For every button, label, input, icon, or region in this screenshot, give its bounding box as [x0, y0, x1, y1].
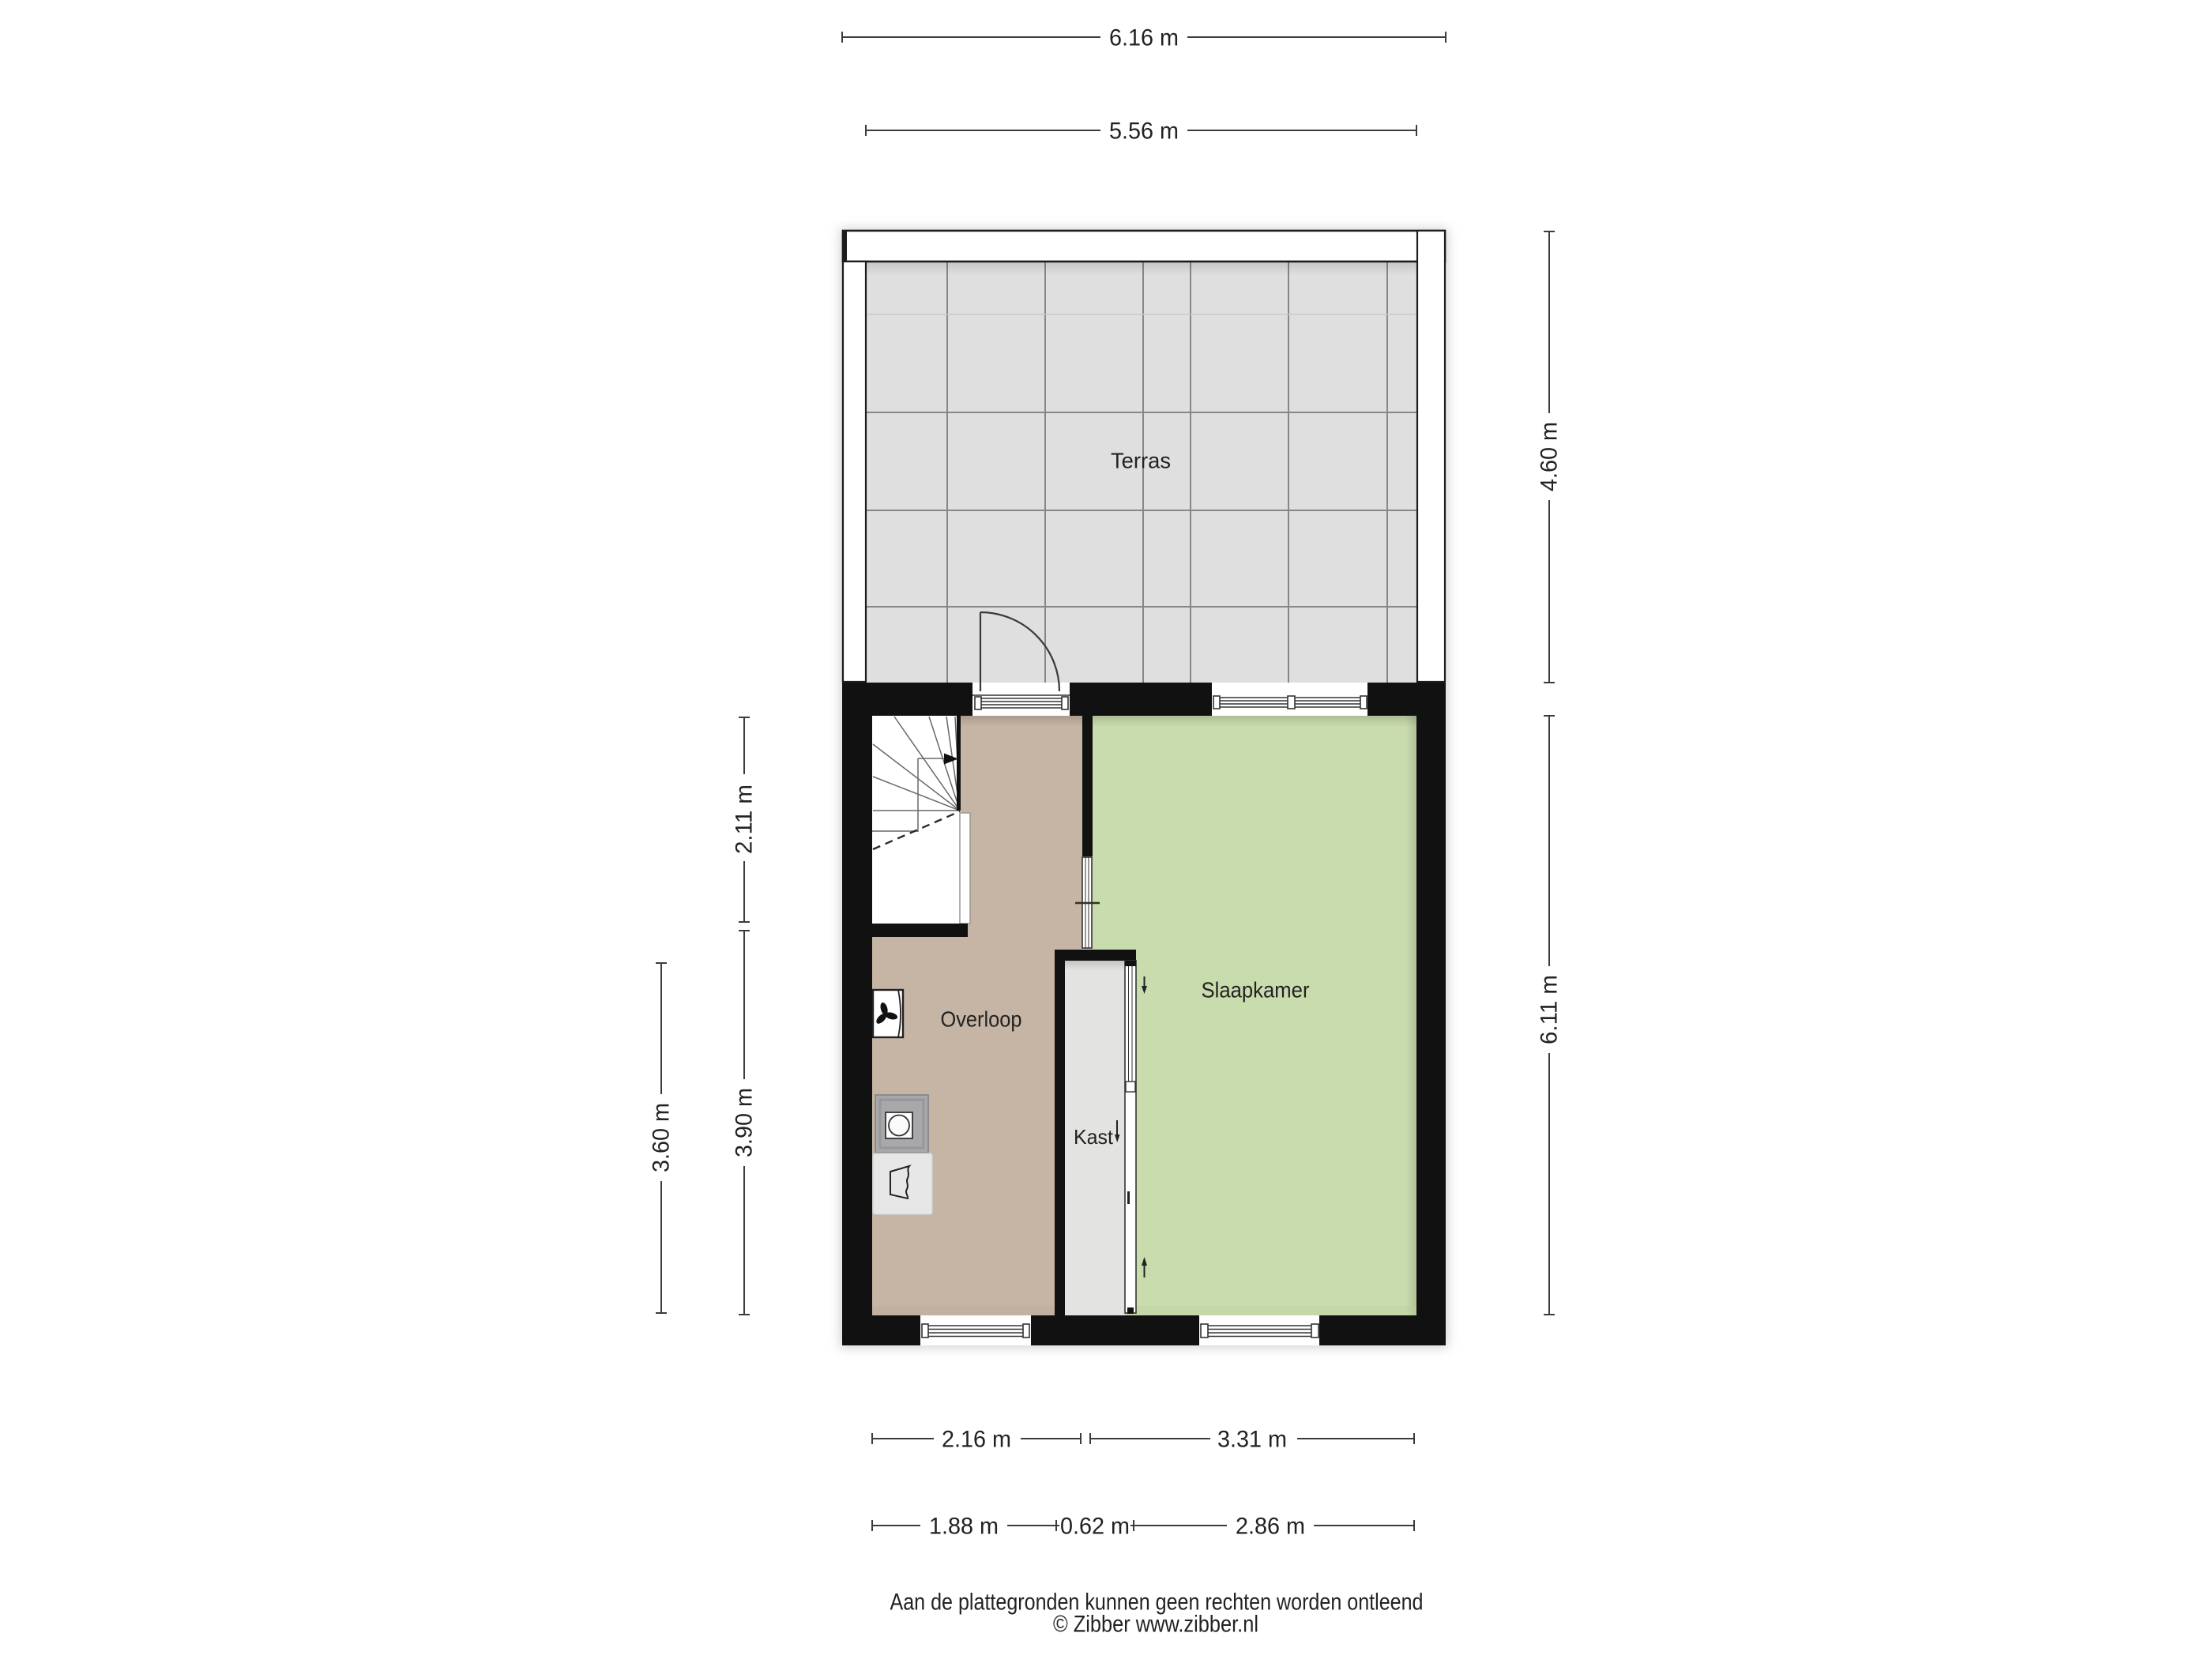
svg-text:5.56 m: 5.56 m	[1109, 119, 1179, 145]
svg-text:Terras: Terras	[1111, 449, 1171, 473]
svg-text:3.31 m: 3.31 m	[1217, 1427, 1287, 1453]
svg-text:1.88 m: 1.88 m	[929, 1514, 999, 1540]
svg-text:Overloop: Overloop	[941, 1007, 1022, 1032]
svg-text:Kast: Kast	[1074, 1125, 1114, 1149]
svg-text:3.60 m: 3.60 m	[649, 1103, 675, 1172]
svg-text:0.62 m: 0.62 m	[1060, 1514, 1130, 1540]
svg-text:2.11 m: 2.11 m	[732, 784, 758, 854]
svg-text:3.90 m: 3.90 m	[732, 1088, 758, 1157]
svg-text:Slaapkamer: Slaapkamer	[1202, 978, 1310, 1003]
svg-text:4.60 m: 4.60 m	[1537, 422, 1563, 491]
svg-text:2.86 m: 2.86 m	[1236, 1514, 1305, 1540]
svg-text:6.16 m: 6.16 m	[1109, 25, 1179, 51]
svg-text:© Zibber www.zibber.nl: © Zibber www.zibber.nl	[1053, 1612, 1258, 1638]
svg-text:6.11 m: 6.11 m	[1537, 975, 1563, 1044]
svg-text:2.16 m: 2.16 m	[942, 1427, 1011, 1453]
